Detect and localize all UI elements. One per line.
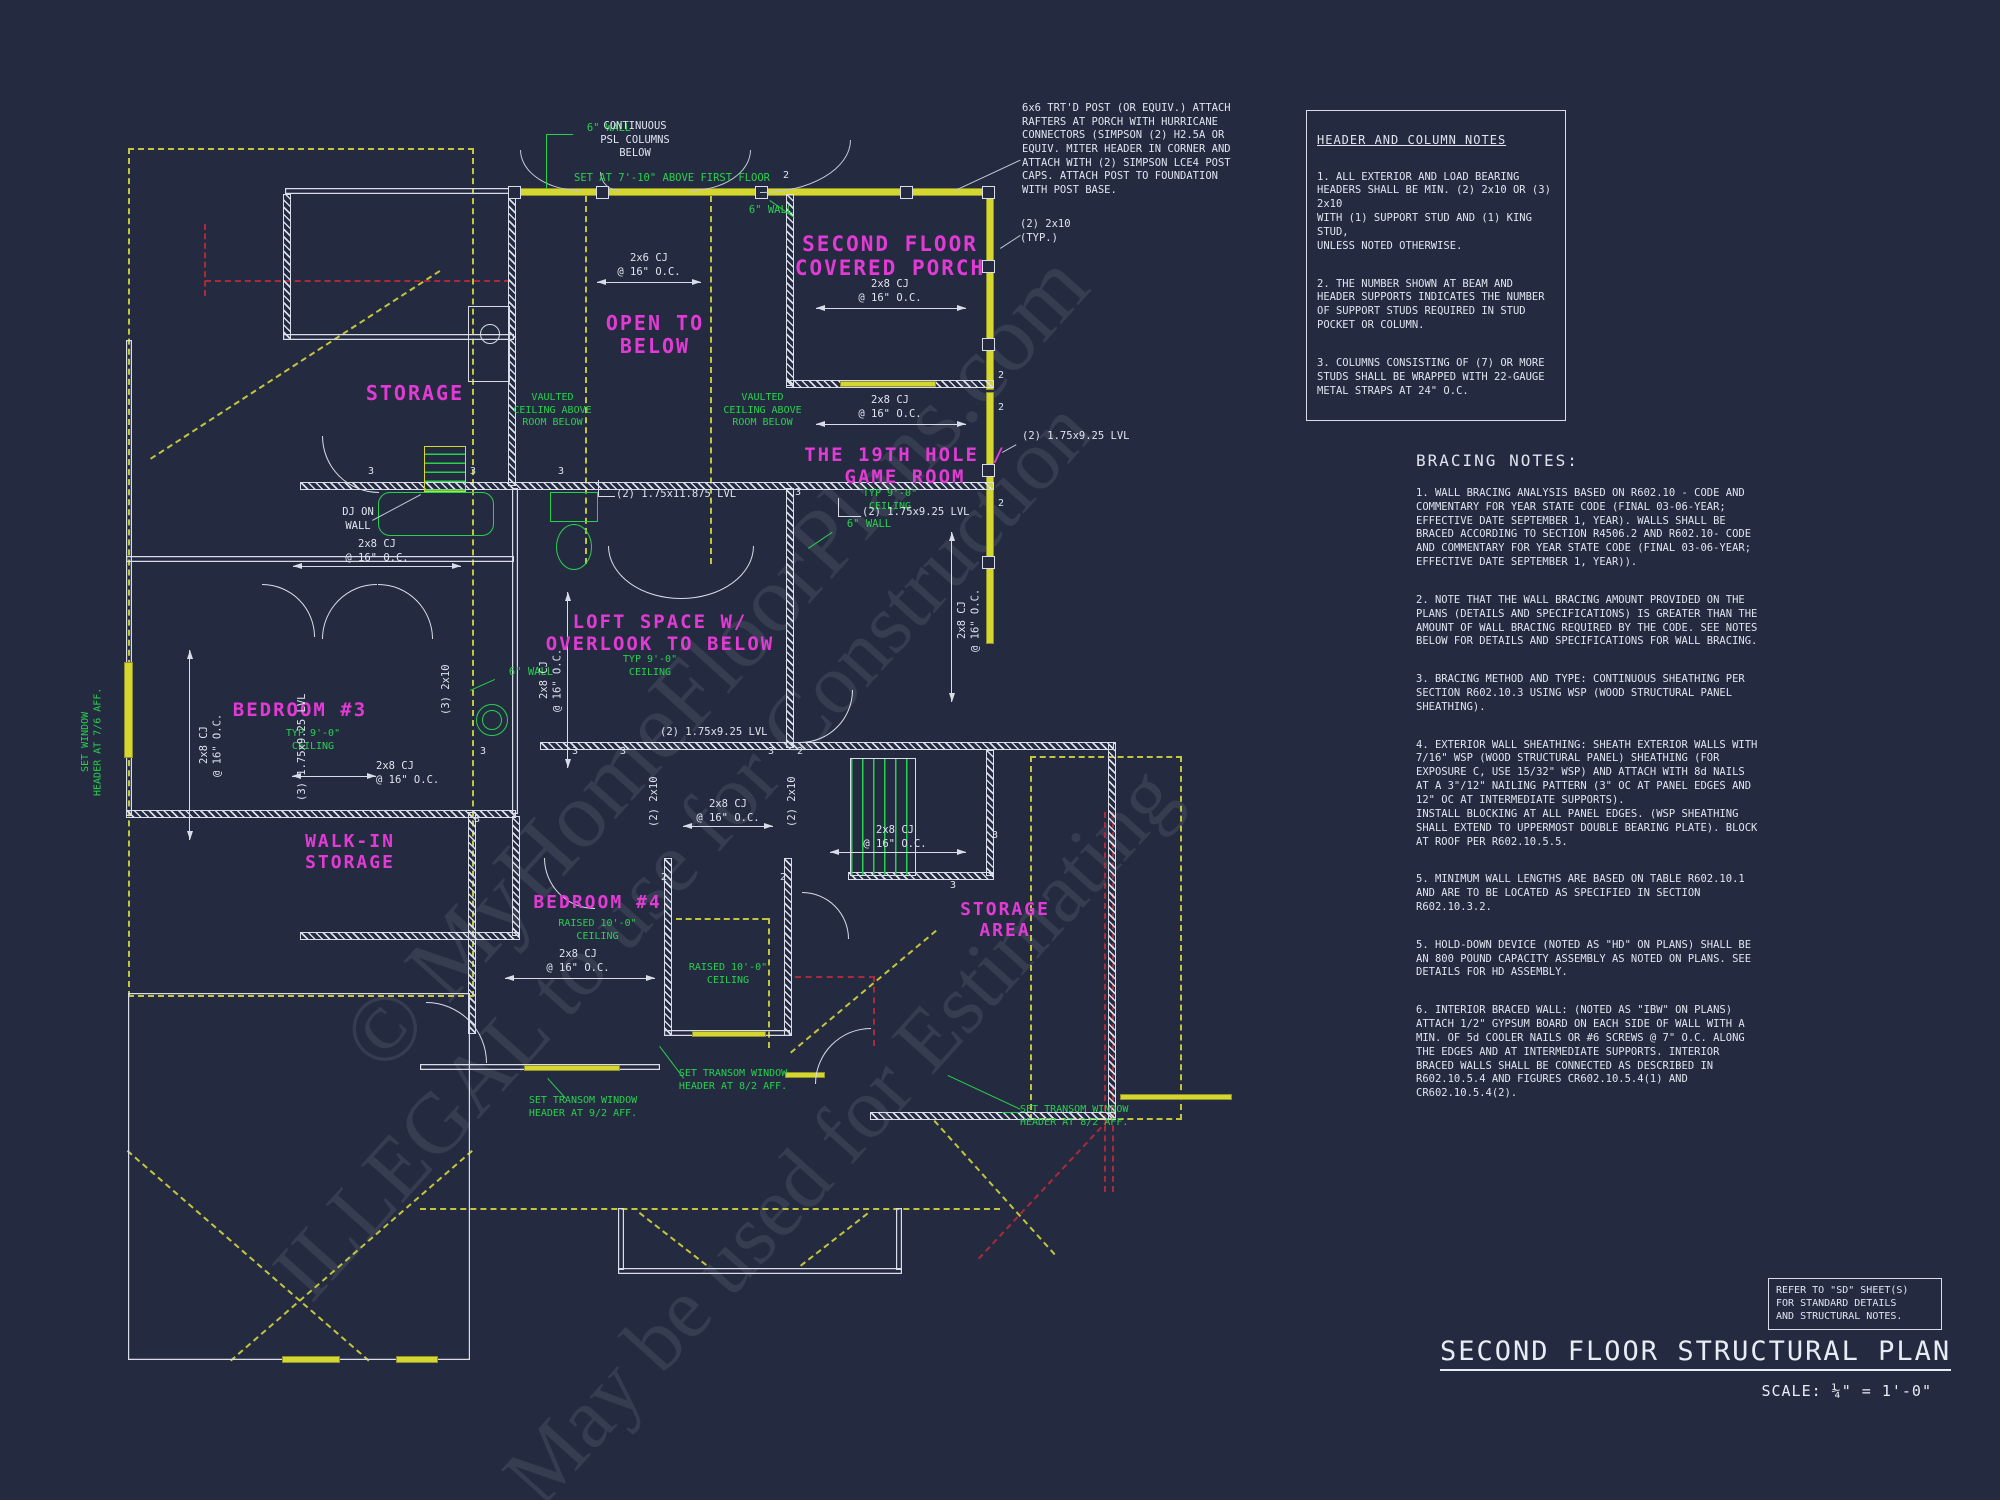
- dim-arrow: [830, 852, 966, 853]
- dim-label-2x8-cj: 2x8 CJ @ 16" O.C.: [528, 948, 628, 975]
- stud-count: 3: [950, 880, 956, 891]
- dim-label-2x8-cj: 2x8 CJ @ 16" O.C.: [840, 278, 940, 305]
- dim-arrow: [683, 826, 773, 827]
- roof-dashed-bay-a: [639, 1212, 707, 1266]
- stud-count: 3: [480, 746, 486, 757]
- wall-bay-left: [618, 1208, 624, 1270]
- wall-walkin-bottom: [300, 932, 520, 940]
- note-set-at-height: SET AT 7'-10" ABOVE FIRST FLOOR: [552, 172, 792, 185]
- callout-2x10-typ: (2) 2x10 (TYP.): [1020, 218, 1110, 245]
- door-arc: [802, 892, 849, 939]
- red-dashed-center-v: [873, 976, 875, 1046]
- stud-count: 2: [783, 170, 789, 181]
- window-bedroom4-bottom: [524, 1065, 620, 1071]
- stud-pocket: [508, 186, 521, 199]
- stud-count: 3: [470, 466, 476, 477]
- beam-label-lvl11875: (2) 1.75x11.875 LVL: [616, 488, 786, 502]
- window-bottomleft-b: [396, 1356, 438, 1363]
- leader-line: [1000, 235, 1021, 249]
- room-label-loft: LOFT SPACE W/ OVERLOOK TO BELOW: [545, 612, 775, 656]
- room-label-bedroom4: BEDROOM #4: [515, 893, 680, 914]
- note-vaulted-ceiling: VAULTED CEILING ABOVE ROOM BELOW: [505, 392, 600, 430]
- note-typ9-ceiling: TYP 9'-0" CEILING: [268, 728, 358, 753]
- arched-opening: [608, 546, 754, 599]
- bracing-note-5b: 5. HOLD-DOWN DEVICE (NOTED AS "HD" ON PL…: [1416, 939, 1761, 981]
- wall-left-vert-a: [283, 194, 291, 340]
- dim-arrow: [293, 566, 461, 567]
- wall-top-left: [285, 188, 513, 194]
- staircase-main: [850, 758, 916, 876]
- stud-count: 3: [474, 814, 480, 825]
- bracing-notes-block: BRACING NOTES: 1. WALL BRACING ANALYSIS …: [1416, 436, 1761, 1115]
- note-6in-wall: 6" WALL: [736, 204, 806, 217]
- header-note-2: 2. THE NUMBER SHOWN AT BEAM AND HEADER S…: [1317, 278, 1555, 333]
- stud-pocket: [596, 186, 609, 199]
- bracing-note-2: 2. NOTE THAT THE WALL BRACING AMOUNT PRO…: [1416, 594, 1761, 649]
- room-label-open-to-below: OPEN TO BELOW: [585, 312, 725, 358]
- roof-dashed-bay-b: [800, 1213, 868, 1267]
- header-note-3: 3. COLUMNS CONSISTING OF (7) OR MORE STU…: [1317, 357, 1555, 399]
- sheet-scale: SCALE: ¼" = 1'-0": [1440, 1382, 1932, 1400]
- note-6in-wall: 6" WALL: [834, 518, 904, 531]
- dim-label-2x8-cj-vertical: 2x8 CJ @ 16" O.C.: [198, 658, 225, 833]
- toilet: [556, 524, 592, 570]
- dim-arrow: [505, 978, 655, 979]
- wall-bedroom3-bottom: [126, 810, 516, 818]
- dim-label-2x8-cj: 2x8 CJ @ 16" O.C.: [376, 760, 471, 787]
- green-leader: [1002, 1112, 1020, 1113]
- wall-loft-right: [786, 488, 794, 748]
- wall-bay-right: [896, 1208, 902, 1270]
- beam-label-lvl925-3-vertical: (3) 1.75x9.25 LVL: [296, 662, 310, 832]
- beam-label-2x10-vertical: (2) 2x10: [786, 762, 800, 842]
- dim-label-2x8-cj-vertical: 2x8 CJ @ 16" O.C.: [538, 598, 565, 763]
- room-label-walk-in: WALK-IN STORAGE: [285, 832, 415, 873]
- wall-bedroom4-top: [540, 742, 1114, 750]
- dim-arrow: [816, 308, 966, 309]
- dim-arrow: [816, 424, 966, 425]
- sheet-title-wrap: SECOND FLOOR STRUCTURAL PLAN: [1440, 1336, 1932, 1371]
- header-column-notes-title: HEADER AND COLUMN NOTES: [1317, 133, 1555, 149]
- callout-post-note: 6x6 TRT'D POST (OR EQUIV.) ATTACH RAFTER…: [1022, 102, 1232, 197]
- beam-label-lvl925: (2) 1.75x9.25 LVL: [660, 726, 810, 740]
- wall-bottom-left-rect: [128, 993, 470, 1360]
- chase-flue: [480, 324, 500, 344]
- stud-count: 3: [558, 466, 564, 477]
- beam-label-lvl925: (2) 1.75x9.25 LVL: [1022, 430, 1172, 444]
- note-typ9-ceiling: TYP 9'-0" CEILING: [605, 654, 695, 679]
- door-arc: [426, 1002, 487, 1063]
- wall-walkin-right: [512, 816, 520, 936]
- refer-sd-box: REFER TO "SD" SHEET(S) FOR STANDARD DETA…: [1768, 1278, 1942, 1330]
- wall-bay-bottom: [618, 1268, 902, 1274]
- red-dashed-storage-h: [205, 280, 510, 282]
- note-vaulted-ceiling: VAULTED CEILING ABOVE ROOM BELOW: [715, 392, 810, 430]
- room-label-storage-area: STORAGE AREA: [950, 900, 1060, 941]
- leader-elbow: [598, 480, 615, 497]
- window-centerroom-bottom: [692, 1031, 766, 1037]
- dim-arrow-vertical: [951, 532, 952, 702]
- stud-pocket: [900, 186, 913, 199]
- roof-dashed-bottom: [420, 1208, 1000, 1210]
- bracing-note-6: 6. INTERIOR BRACED WALL: (NOTED AS "IBW"…: [1416, 1004, 1761, 1101]
- red-dashed-right-v1: [1104, 812, 1106, 1192]
- stud-pocket: [982, 338, 995, 351]
- bracing-notes-title: BRACING NOTES:: [1416, 450, 1761, 471]
- door-arc: [815, 1028, 871, 1084]
- green-leader: [948, 1075, 1021, 1110]
- note-transom-82: SET TRANSOM WINDOW HEADER AT 8/2 AFF.: [668, 1068, 798, 1093]
- stud-count: 3: [768, 746, 774, 757]
- beam-label-2x10-vertical: (2) 2x10: [648, 762, 662, 842]
- bracing-note-1: 1. WALL BRACING ANALYSIS BASED ON R602.1…: [1416, 487, 1761, 570]
- stud-count: 3: [992, 830, 998, 841]
- dim-label-2x8-cj: 2x8 CJ @ 16" O.C.: [840, 394, 940, 421]
- raised-ceiling-dashed-h: [676, 918, 768, 920]
- stud-count: 3: [620, 746, 626, 757]
- wall-bedroom4-mid1: [664, 858, 672, 1036]
- room-label-storage: STORAGE: [330, 382, 500, 405]
- stud-count: 2: [998, 370, 1004, 381]
- stud-count: 3: [368, 466, 374, 477]
- green-leader: [808, 532, 833, 549]
- stud-pocket: [982, 186, 995, 199]
- window-bottomleft-a: [282, 1356, 340, 1363]
- stud-count: 2: [780, 872, 786, 883]
- stud-count: 3: [572, 746, 578, 757]
- dim-arrow: [597, 282, 701, 283]
- wall-storagearea-right: [1108, 742, 1116, 1120]
- red-dashed-diagonal: [978, 1112, 1116, 1260]
- window-bedroom3-left: [124, 662, 133, 758]
- header-column-notes-box: HEADER AND COLUMN NOTES 1. ALL EXTERIOR …: [1306, 110, 1566, 421]
- bracing-note-4: 4. EXTERIOR WALL SHEATHING: SHEATH EXTER…: [1416, 739, 1761, 850]
- dim-label-2x6-cj: 2x6 CJ @ 16" O.C.: [599, 252, 699, 279]
- note-raised-ceiling: RAISED 10'-0" CEILING: [672, 962, 784, 987]
- psl-beam-top: [513, 188, 991, 196]
- callout-psl-columns: CONTINUOUS PSL COLUMNS BELOW: [575, 120, 695, 161]
- dim-label-2x8-cj: 2x8 CJ @ 16" O.C.: [845, 824, 945, 851]
- sink: [550, 492, 598, 522]
- red-dashed-topleft-v: [204, 224, 206, 296]
- note-raised-ceiling: RAISED 10'-0" CEILING: [540, 918, 655, 943]
- stud-count: 2: [998, 402, 1004, 413]
- beam-label-lvl925: (2) 1.75x9.25 LVL: [862, 506, 1012, 520]
- stud-count: 2: [661, 872, 667, 883]
- note-transom-92: SET TRANSOM WINDOW HEADER AT 9/2 AFF.: [518, 1095, 648, 1120]
- room-label-game-room: THE 19TH HOLE / GAME ROOM: [800, 445, 1010, 489]
- note-window-header: SET WINDOW HEADER AT 7/6 AFF.: [80, 662, 105, 822]
- chase-box: [468, 306, 510, 382]
- roof-dashed-open-below-right: [710, 196, 712, 564]
- dim-label-2x8-cj: 2x8 CJ @ 16" O.C.: [678, 798, 778, 825]
- window-porch-bottom: [840, 381, 936, 387]
- header-note-1: 1. ALL EXTERIOR AND LOAD BEARING HEADERS…: [1317, 171, 1555, 254]
- shower-drain-inner: [482, 710, 502, 730]
- bracing-note-3: 3. BRACING METHOD AND TYPE: CONTINUOUS S…: [1416, 673, 1761, 715]
- wall-loft-left: [512, 488, 518, 814]
- transom-window-right: [1120, 1094, 1232, 1100]
- dim-label-2x8-cj-vertical: 2x8 CJ @ 16" O.C.: [956, 540, 983, 700]
- structural-plan-sheet: © MyHomeFloorPlans.com ILLEGAL to use fo…: [0, 0, 2000, 1500]
- stud-count: 2: [998, 498, 1004, 509]
- room-label-covered-porch: SECOND FLOOR COVERED PORCH: [790, 232, 990, 280]
- stud-count: 3: [795, 487, 801, 498]
- roof-dashed-valley-b: [934, 1120, 1056, 1255]
- callout-dj-on-wall: DJ ON WALL: [328, 506, 388, 533]
- stud-count: 2: [797, 746, 803, 757]
- note-transom-82: SET TRANSOM WINDOW HEADER AT 8/2 AFF.: [1020, 1104, 1150, 1129]
- wall-porch-left: [786, 194, 794, 386]
- staircase-small: [424, 446, 466, 492]
- red-dashed-center-h: [795, 976, 875, 978]
- beam-label-2x10-3-vertical: (3) 2x10: [440, 645, 454, 735]
- dim-label-2x8-cj: 2x8 CJ @ 16" O.C.: [327, 538, 427, 565]
- stud-pocket: [982, 556, 995, 569]
- wall-stair-right: [986, 750, 994, 876]
- dim-arrow-vertical: [189, 650, 190, 840]
- wall-bedroom4-mid2: [784, 858, 792, 1036]
- bracing-note-5a: 5. MINIMUM WALL LENGTHS ARE BASED ON TAB…: [1416, 873, 1761, 915]
- wall-bedroom3-top: [126, 556, 514, 562]
- bathtub: [378, 492, 494, 536]
- beam-porch-right: [986, 194, 994, 390]
- wall-bedroom4-left: [468, 812, 476, 1034]
- sheet-title: SECOND FLOOR STRUCTURAL PLAN: [1440, 1336, 1951, 1371]
